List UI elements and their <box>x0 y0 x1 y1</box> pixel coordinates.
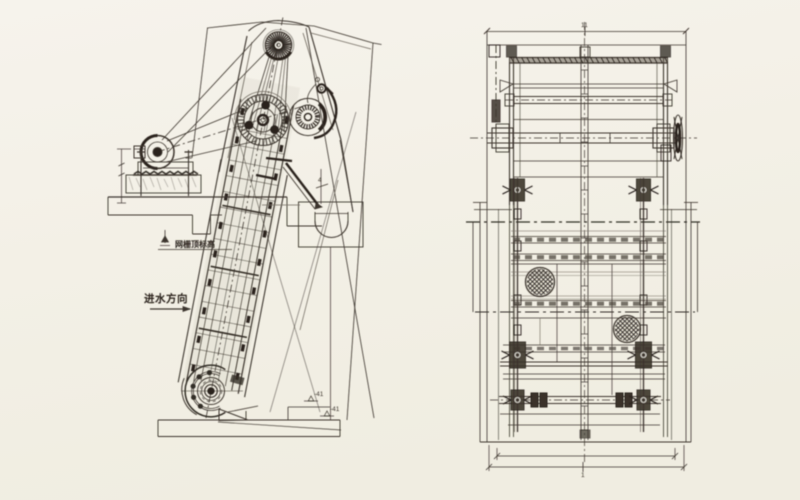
svg-text:网栅顶标高: 网栅顶标高 <box>175 239 215 249</box>
svg-text:进水方向: 进水方向 <box>144 292 188 305</box>
svg-text:4: 4 <box>318 177 322 184</box>
svg-text:1: 1 <box>581 472 585 479</box>
svg-text:-41: -41 <box>330 406 340 413</box>
